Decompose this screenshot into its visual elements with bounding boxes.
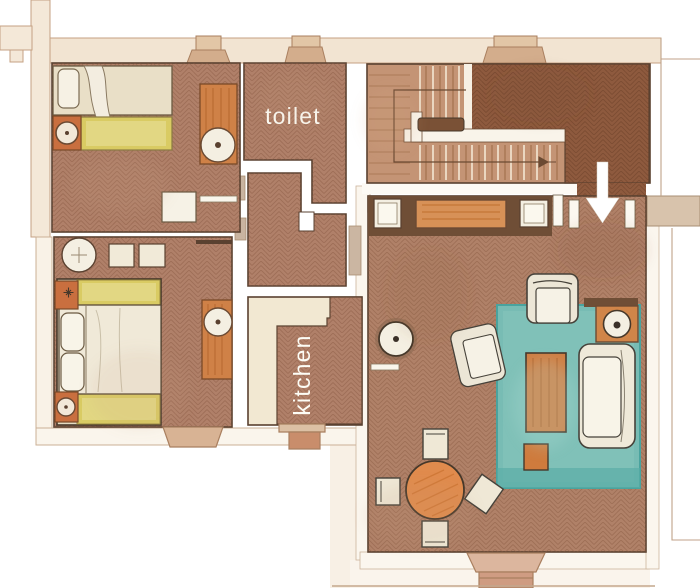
svg-text:kitchen: kitchen	[289, 334, 315, 415]
